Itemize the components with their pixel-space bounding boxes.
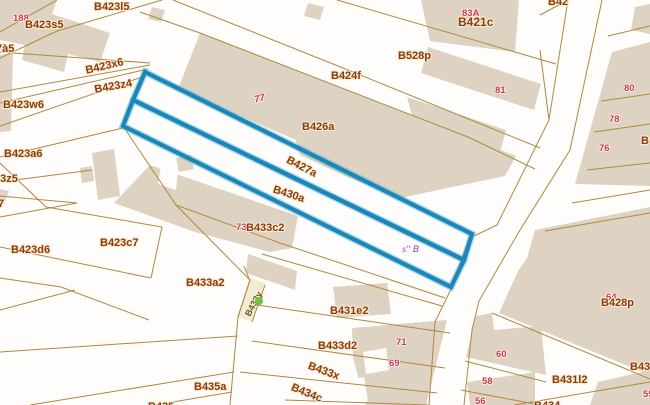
svg-text:B423c7: B423c7 xyxy=(100,237,139,249)
svg-text:60: 60 xyxy=(496,349,507,360)
svg-text:55: 55 xyxy=(643,389,650,400)
svg-text:B433d2: B433d2 xyxy=(318,340,357,352)
svg-text:B421c: B421c xyxy=(458,15,494,29)
svg-text:B431l2: B431l2 xyxy=(552,374,587,386)
svg-text:7à5: 7à5 xyxy=(0,43,14,55)
svg-text:B423l5: B423l5 xyxy=(94,1,129,13)
svg-text:7: 7 xyxy=(0,198,4,210)
svg-text:B435: B435 xyxy=(148,401,174,405)
svg-text:B424f: B424f xyxy=(331,70,361,82)
svg-text:B528p: B528p xyxy=(398,50,431,62)
svg-text:78: 78 xyxy=(609,114,620,125)
svg-text:B434: B434 xyxy=(534,400,561,405)
svg-text:76: 76 xyxy=(599,143,610,154)
svg-text:B: B xyxy=(641,135,649,147)
svg-text:73: 73 xyxy=(236,222,247,233)
svg-text:81: 81 xyxy=(495,85,506,96)
svg-text:B426a: B426a xyxy=(302,121,335,133)
svg-text:69: 69 xyxy=(389,358,400,369)
svg-text:23z5: 23z5 xyxy=(0,173,18,185)
svg-text:B42: B42 xyxy=(548,0,568,8)
svg-text:B431e2: B431e2 xyxy=(330,305,369,317)
svg-text:B423a6: B423a6 xyxy=(4,148,43,160)
svg-text:B423w6: B423w6 xyxy=(3,99,44,111)
svg-text:B423d6: B423d6 xyxy=(11,244,50,256)
svg-text:80: 80 xyxy=(624,83,635,94)
svg-text:56: 56 xyxy=(475,396,486,405)
svg-text:B433: B433 xyxy=(630,361,650,373)
svg-text:B423s5: B423s5 xyxy=(25,19,64,31)
svg-text:71: 71 xyxy=(396,337,407,348)
svg-text:58: 58 xyxy=(482,376,493,387)
svg-text:B433c2: B433c2 xyxy=(246,222,285,234)
svg-text:B428p: B428p xyxy=(601,297,634,309)
svg-text:B435a: B435a xyxy=(194,381,227,393)
svg-text:B433a2: B433a2 xyxy=(186,277,225,289)
